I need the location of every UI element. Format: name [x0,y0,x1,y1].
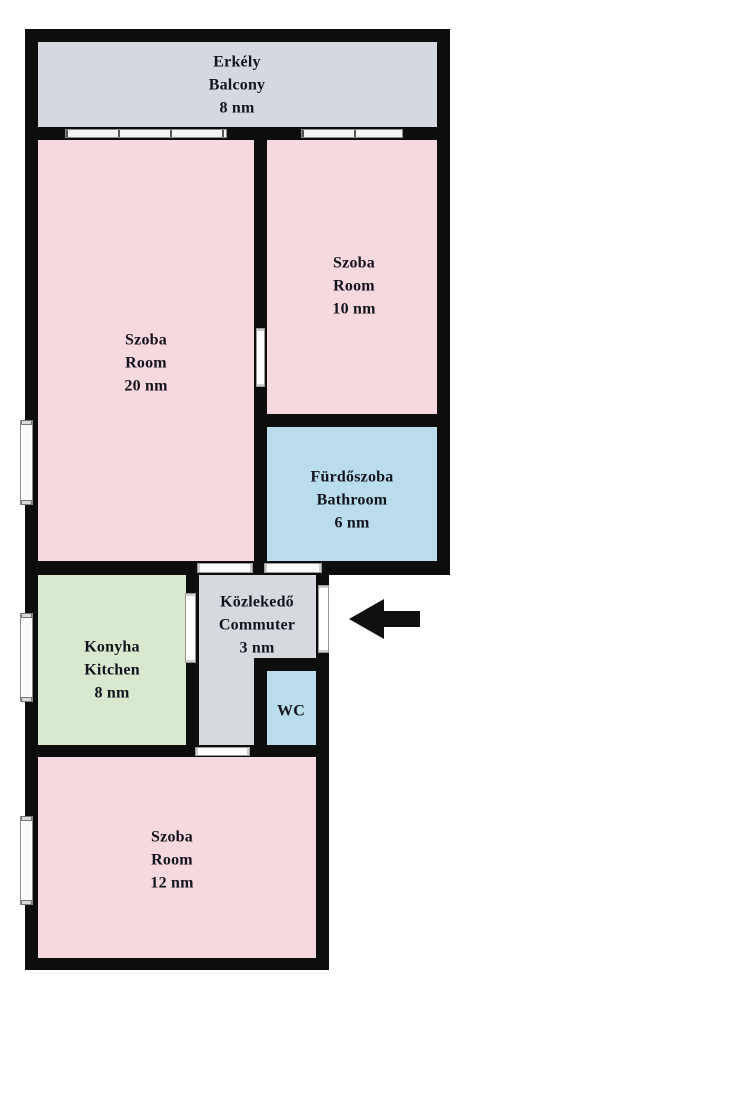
floor-plan: Erkély Balcony 8 nm Szoba Room 20 nm Szo… [0,0,730,1108]
balcony-area-label: 8 nm [209,97,266,120]
balcony-label: Erkély Balcony 8 nm [209,51,266,120]
wall-wc-top [254,658,329,671]
balcony-window-left [65,129,227,138]
room-20-label: Szoba Room 20 nm [124,329,167,398]
kitchen-name-hu: Konyha [84,636,140,659]
wall-balcony-right [437,29,450,140]
commuter-area-label: 3 nm [219,637,295,660]
kitchen-area-label: 8 nm [84,682,140,705]
room-20-name-en: Room [124,352,167,375]
door-entrance [318,585,329,653]
door-room-20-room-10 [256,328,265,387]
room-10-name-en: Room [332,275,375,298]
commuter-label: Közlekedő Commuter 3 nm [219,591,295,660]
room-12-label: Szoba Room 12 nm [150,826,193,895]
bathroom-name-hu: Fürdőszoba [311,466,394,489]
bathroom-area-label: 6 nm [311,512,394,535]
room-12-name-en: Room [150,849,193,872]
door-commuter-room-12 [195,747,250,756]
kitchen-window [20,613,33,702]
room-10-label: Szoba Room 10 nm [332,252,375,321]
wc-label: WC [277,700,305,723]
balcony-name-hu: Erkély [209,51,266,74]
balcony-window-right [301,129,403,138]
kitchen-label: Konyha Kitchen 8 nm [84,636,140,705]
wc-name: WC [277,700,305,723]
door-kitchen-commuter [185,593,196,663]
commuter-name-en: Commuter [219,614,295,637]
room-20-area-label: 20 nm [124,375,167,398]
bathroom-name-en: Bathroom [311,489,394,512]
wall-lower-mid [25,745,329,757]
wall-balcony-left [25,29,38,140]
wall-room-12-right [316,745,329,970]
room-20-name-hu: Szoba [124,329,167,352]
room-20-window [20,420,33,505]
room-10-name-hu: Szoba [332,252,375,275]
door-bathroom-commuter [264,563,322,573]
kitchen-name-en: Kitchen [84,659,140,682]
room-12-window [20,816,33,905]
balcony-name-en: Balcony [209,74,266,97]
wall-wc-left [254,658,267,757]
wall-room-12-bottom [25,958,329,970]
wall-outer-right [437,127,450,575]
commuter-name-hu: Közlekedő [219,591,295,614]
bathroom-label: Fürdőszoba Bathroom 6 nm [311,466,394,535]
room-10-area-label: 10 nm [332,298,375,321]
wall-bathroom-top [254,414,450,427]
entrance-arrow-icon [346,597,424,641]
room-12-name-hu: Szoba [150,826,193,849]
wall-balcony-top [25,29,450,42]
door-room-20-commuter [197,563,253,573]
room-12-area-label: 12 nm [150,872,193,895]
